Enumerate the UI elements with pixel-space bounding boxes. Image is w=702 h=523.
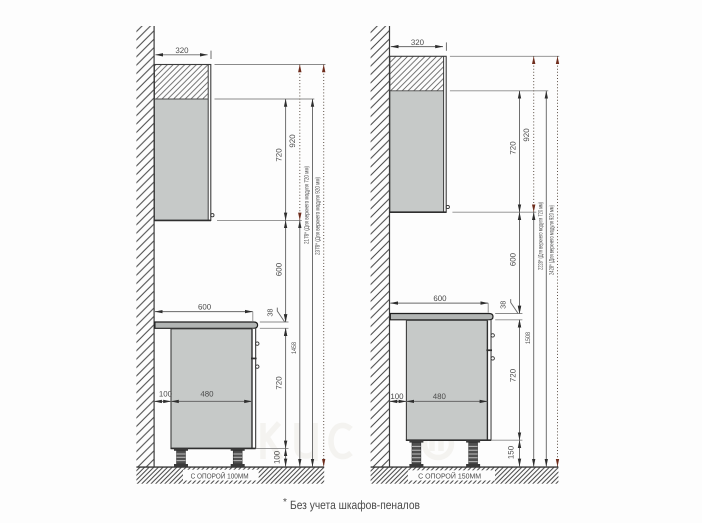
- svg-text:600: 600: [433, 294, 447, 303]
- svg-text:720: 720: [274, 148, 283, 162]
- svg-text:2378* (Для верхнего модуля 920: 2378* (Для верхнего модуля 920 мм): [315, 177, 322, 255]
- svg-text:720: 720: [508, 368, 517, 382]
- svg-text:100: 100: [273, 450, 282, 464]
- svg-text:С ОПОРОЙ 100ММ: С ОПОРОЙ 100ММ: [191, 471, 249, 480]
- svg-text:2178* (Для верхнего модуля 720: 2178* (Для верхнего модуля 720 мм): [304, 166, 311, 244]
- svg-text:600: 600: [274, 262, 283, 276]
- svg-text:Без учета шкафов-пеналов: Без учета шкафов-пеналов: [290, 498, 420, 512]
- svg-text:150: 150: [507, 445, 516, 459]
- svg-text:С ОПОРОЙ 150ММ: С ОПОРОЙ 150ММ: [418, 471, 481, 480]
- svg-text:320: 320: [411, 38, 425, 47]
- svg-text:600: 600: [198, 303, 212, 312]
- svg-text:*: *: [283, 497, 287, 508]
- svg-text:2428* (Для верхнего модуля 920: 2428* (Для верхнего модуля 920 мм): [548, 205, 555, 275]
- svg-text:2228* (Для верхнего модуля 720: 2228* (Для верхнего модуля 720 мм): [537, 202, 544, 270]
- svg-text:480: 480: [200, 390, 214, 399]
- svg-text:320: 320: [175, 46, 189, 55]
- svg-text:720: 720: [508, 141, 517, 155]
- svg-text:1458: 1458: [291, 342, 298, 354]
- svg-text:100: 100: [390, 392, 404, 401]
- svg-text:38: 38: [499, 301, 508, 309]
- svg-text:480: 480: [433, 392, 447, 401]
- svg-text:1508: 1508: [525, 332, 532, 344]
- svg-text:600: 600: [508, 252, 517, 266]
- svg-text:920: 920: [522, 128, 531, 142]
- svg-text:920: 920: [288, 134, 297, 148]
- svg-text:38: 38: [266, 309, 275, 317]
- svg-text:100: 100: [159, 390, 173, 399]
- svg-text:720: 720: [274, 376, 283, 390]
